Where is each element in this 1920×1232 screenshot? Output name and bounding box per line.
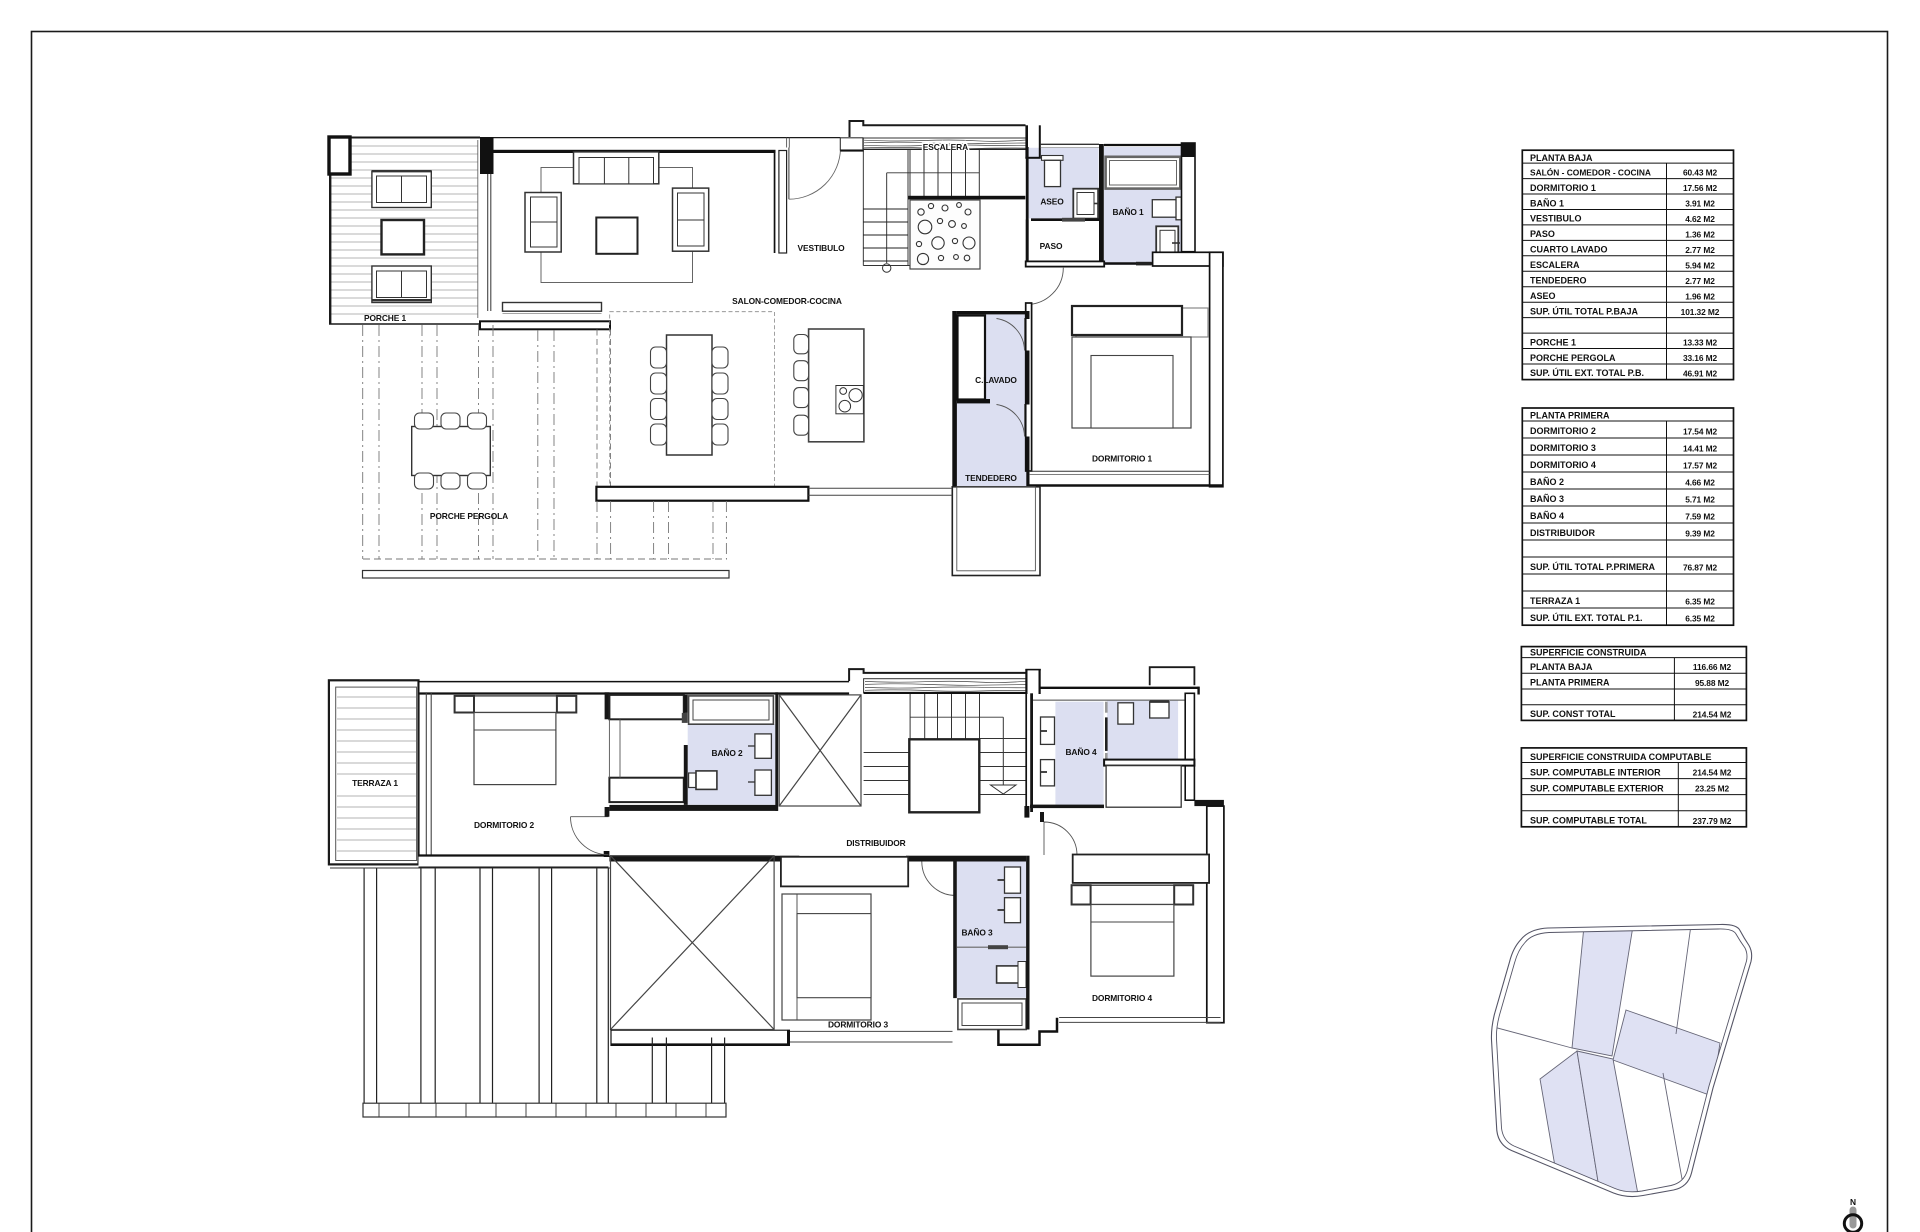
svg-text:DORMITORIO 2: DORMITORIO 2 bbox=[1530, 426, 1596, 436]
svg-text:76.87 M2: 76.87 M2 bbox=[1683, 562, 1718, 572]
svg-text:BAÑO 1: BAÑO 1 bbox=[1112, 207, 1143, 217]
svg-text:ESCALERA: ESCALERA bbox=[923, 142, 968, 152]
svg-text:CUARTO LAVADO: CUARTO LAVADO bbox=[1530, 245, 1608, 255]
svg-text:23.25 M2: 23.25 M2 bbox=[1695, 784, 1730, 794]
svg-text:DORMITORIO 4: DORMITORIO 4 bbox=[1530, 460, 1596, 470]
svg-text:17.54 M2: 17.54 M2 bbox=[1683, 426, 1718, 436]
svg-text:214.54 M2: 214.54 M2 bbox=[1693, 768, 1732, 778]
svg-text:TENDEDERO: TENDEDERO bbox=[1530, 276, 1587, 286]
svg-text:BAÑO 1: BAÑO 1 bbox=[1530, 198, 1564, 208]
svg-text:4.62 M2: 4.62 M2 bbox=[1685, 214, 1715, 224]
svg-text:SUP. CONST TOTAL: SUP. CONST TOTAL bbox=[1530, 709, 1616, 719]
svg-text:DORMITORIO 1: DORMITORIO 1 bbox=[1092, 454, 1153, 464]
svg-text:PASO: PASO bbox=[1040, 241, 1063, 251]
svg-text:214.54 M2: 214.54 M2 bbox=[1693, 709, 1732, 719]
svg-text:DORMITORIO 1: DORMITORIO 1 bbox=[1530, 183, 1596, 193]
svg-text:VESTIBULO: VESTIBULO bbox=[1530, 214, 1582, 224]
svg-text:5.71 M2: 5.71 M2 bbox=[1685, 494, 1715, 504]
svg-text:ASEO: ASEO bbox=[1530, 291, 1556, 301]
svg-text:BAÑO 4: BAÑO 4 bbox=[1530, 511, 1564, 521]
svg-text:1.96 M2: 1.96 M2 bbox=[1685, 291, 1715, 301]
svg-text:PORCHE PERGOLA: PORCHE PERGOLA bbox=[430, 511, 508, 521]
svg-text:VESTIBULO: VESTIBULO bbox=[797, 243, 845, 253]
svg-text:2.77 M2: 2.77 M2 bbox=[1685, 276, 1715, 286]
svg-text:C.LAVADO: C.LAVADO bbox=[975, 375, 1017, 385]
svg-text:PORCHE 1: PORCHE 1 bbox=[1530, 337, 1576, 347]
svg-text:DORMITORIO 3: DORMITORIO 3 bbox=[828, 1020, 889, 1030]
svg-text:DISTRIBUIDOR: DISTRIBUIDOR bbox=[1530, 528, 1596, 538]
svg-text:PASO: PASO bbox=[1530, 229, 1555, 239]
svg-text:SUP. COMPUTABLE INTERIOR: SUP. COMPUTABLE INTERIOR bbox=[1530, 767, 1661, 777]
svg-text:4.66 M2: 4.66 M2 bbox=[1685, 477, 1715, 487]
svg-text:6.35 M2: 6.35 M2 bbox=[1685, 596, 1715, 606]
svg-text:6.35 M2: 6.35 M2 bbox=[1685, 613, 1715, 623]
svg-text:BAÑO 2: BAÑO 2 bbox=[711, 748, 742, 758]
svg-text:BAÑO 3: BAÑO 3 bbox=[961, 928, 992, 938]
svg-text:5.94 M2: 5.94 M2 bbox=[1685, 261, 1715, 271]
svg-text:101.32 M2: 101.32 M2 bbox=[1681, 307, 1720, 317]
svg-text:17.56 M2: 17.56 M2 bbox=[1683, 183, 1718, 193]
svg-text:SUP. ÚTIL TOTAL P.PRIMERA: SUP. ÚTIL TOTAL P.PRIMERA bbox=[1530, 561, 1656, 572]
svg-text:DORMITORIO 2: DORMITORIO 2 bbox=[474, 820, 535, 830]
svg-text:N: N bbox=[1850, 1197, 1856, 1207]
svg-text:60.43 M2: 60.43 M2 bbox=[1683, 168, 1718, 178]
svg-text:3.91 M2: 3.91 M2 bbox=[1685, 199, 1715, 209]
svg-text:ESCALERA: ESCALERA bbox=[1530, 260, 1580, 270]
svg-text:SUP. ÚTIL EXT. TOTAL P.1.: SUP. ÚTIL EXT. TOTAL P.1. bbox=[1530, 612, 1643, 623]
svg-text:BAÑO 4: BAÑO 4 bbox=[1065, 747, 1096, 757]
svg-text:SUPERFICIE CONSTRUIDA COMPUTAB: SUPERFICIE CONSTRUIDA COMPUTABLE bbox=[1530, 752, 1712, 762]
svg-text:46.91 M2: 46.91 M2 bbox=[1683, 369, 1718, 379]
svg-text:TENDEDERO: TENDEDERO bbox=[965, 473, 1017, 483]
svg-text:237.79 M2: 237.79 M2 bbox=[1693, 816, 1732, 826]
svg-text:PLANTA BAJA: PLANTA BAJA bbox=[1530, 662, 1593, 672]
svg-text:95.88 M2: 95.88 M2 bbox=[1695, 678, 1730, 688]
svg-text:PLANTA BAJA: PLANTA BAJA bbox=[1530, 153, 1593, 163]
svg-text:ASEO: ASEO bbox=[1040, 197, 1064, 207]
svg-text:BAÑO 2: BAÑO 2 bbox=[1530, 477, 1564, 487]
svg-text:PLANTA PRIMERA: PLANTA PRIMERA bbox=[1530, 411, 1610, 421]
svg-text:PORCHE 1: PORCHE 1 bbox=[364, 313, 406, 323]
svg-text:SUPERFICIE CONSTRUIDA: SUPERFICIE CONSTRUIDA bbox=[1530, 648, 1647, 658]
svg-text:PLANTA PRIMERA: PLANTA PRIMERA bbox=[1530, 678, 1610, 688]
svg-text:9.39 M2: 9.39 M2 bbox=[1685, 528, 1715, 538]
svg-text:PORCHE PERGOLA: PORCHE PERGOLA bbox=[1530, 353, 1616, 363]
svg-text:DORMITORIO 3: DORMITORIO 3 bbox=[1530, 443, 1596, 453]
svg-text:SUP. ÚTIL TOTAL P.BAJA: SUP. ÚTIL TOTAL P.BAJA bbox=[1530, 305, 1639, 316]
svg-text:SUP. COMPUTABLE TOTAL: SUP. COMPUTABLE TOTAL bbox=[1530, 816, 1647, 826]
svg-text:1.36 M2: 1.36 M2 bbox=[1685, 230, 1715, 240]
svg-text:116.66 M2: 116.66 M2 bbox=[1693, 662, 1732, 672]
svg-text:BAÑO 3: BAÑO 3 bbox=[1530, 494, 1564, 504]
svg-text:SALÓN - COMEDOR - COCINA: SALÓN - COMEDOR - COCINA bbox=[1530, 167, 1651, 178]
svg-text:TERRAZA 1: TERRAZA 1 bbox=[1530, 596, 1580, 606]
svg-text:17.57 M2: 17.57 M2 bbox=[1683, 460, 1718, 470]
svg-text:2.77 M2: 2.77 M2 bbox=[1685, 245, 1715, 255]
svg-text:DISTRIBUIDOR: DISTRIBUIDOR bbox=[846, 838, 905, 848]
svg-text:SALON-COMEDOR-COCINA: SALON-COMEDOR-COCINA bbox=[732, 296, 842, 306]
svg-text:SUP. COMPUTABLE EXTERIOR: SUP. COMPUTABLE EXTERIOR bbox=[1530, 783, 1664, 793]
svg-text:14.41 M2: 14.41 M2 bbox=[1683, 443, 1718, 453]
svg-text:13.33 M2: 13.33 M2 bbox=[1683, 338, 1718, 348]
svg-text:TERRAZA 1: TERRAZA 1 bbox=[352, 778, 398, 788]
svg-text:33.16 M2: 33.16 M2 bbox=[1683, 353, 1718, 363]
svg-text:7.59 M2: 7.59 M2 bbox=[1685, 511, 1715, 521]
svg-text:DORMITORIO 4: DORMITORIO 4 bbox=[1092, 993, 1153, 1003]
svg-text:SUP. ÚTIL EXT. TOTAL P.B.: SUP. ÚTIL EXT. TOTAL P.B. bbox=[1530, 367, 1644, 378]
